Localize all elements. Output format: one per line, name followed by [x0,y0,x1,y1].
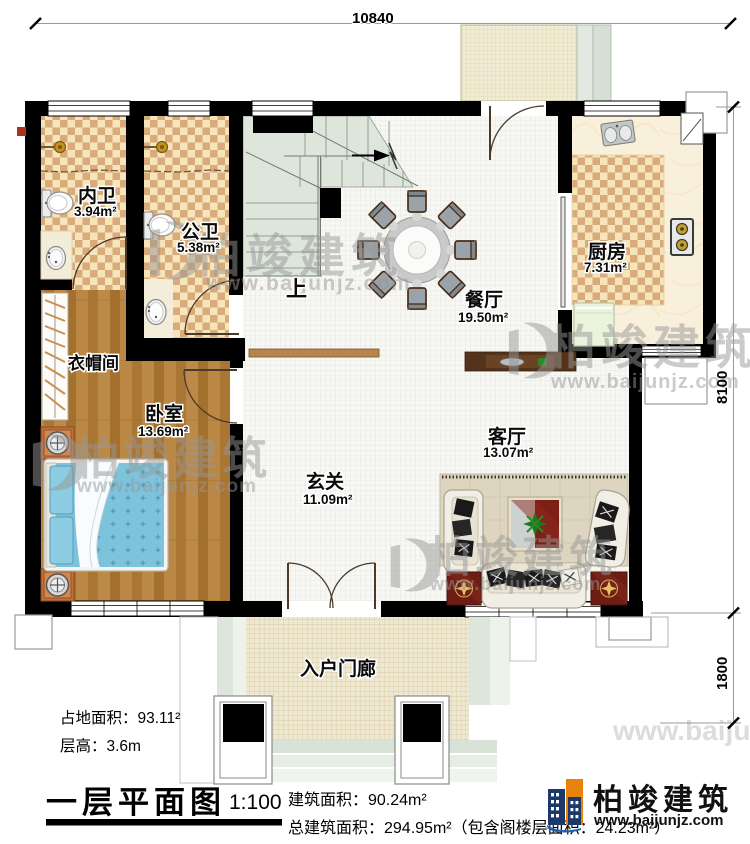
svg-text:卧室: 卧室 [145,402,183,425]
svg-text:5.38m²: 5.38m² [177,240,220,255]
svg-text:1:100: 1:100 [229,791,282,814]
svg-text:8100: 8100 [714,371,731,404]
svg-text:1800: 1800 [714,657,731,690]
svg-text:7.31m²: 7.31m² [584,260,627,275]
svg-text:10840: 10840 [352,10,394,27]
svg-text:上: 上 [286,278,307,301]
svg-text:www.baiju: www.baiju [612,715,750,746]
svg-text:餐厅: 餐厅 [465,288,503,311]
svg-text:11.09m²: 11.09m² [303,492,353,507]
svg-text:www.baijunjz.com: www.baijunjz.com [205,272,411,295]
svg-text:占地面积：93.11²: 占地面积：93.11² [60,709,180,727]
svg-text:建筑面积：90.24m²: 建筑面积：90.24m² [288,791,427,809]
svg-text:柏竣建筑: 柏竣建筑 [549,321,750,374]
svg-text:3.94m²: 3.94m² [74,204,117,219]
svg-text:www.baijunjz.com: www.baijunjz.com [76,476,257,497]
svg-text:www.baijunjz.com: www.baijunjz.com [429,574,601,594]
svg-text:衣帽间: 衣帽间 [68,353,119,373]
svg-text:一层平面图: 一层平面图 [46,785,226,820]
svg-text:19.50m²: 19.50m² [458,310,509,325]
svg-text:13.07m²: 13.07m² [483,445,534,460]
svg-text:玄关: 玄关 [306,470,344,493]
svg-text:13.69m²: 13.69m² [138,424,189,439]
svg-text:www.baijunjz.com: www.baijunjz.com [550,371,740,393]
svg-text:入户门廊: 入户门廊 [300,657,376,680]
svg-text:www.baijunjz.com: www.baijunjz.com [593,812,723,829]
svg-text:层高：3.6m: 层高：3.6m [60,737,141,755]
